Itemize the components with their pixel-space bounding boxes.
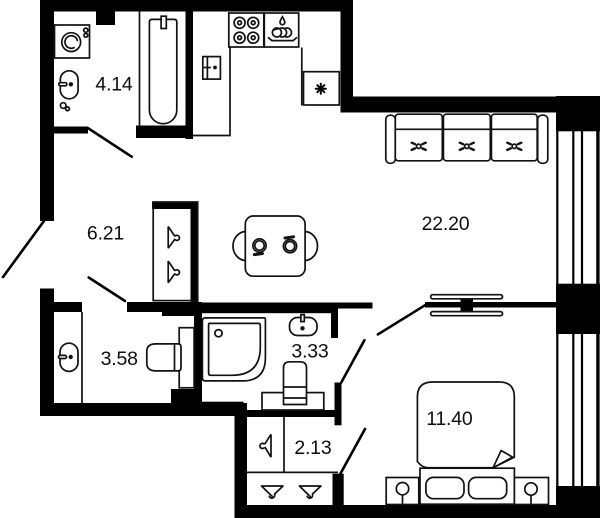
svg-text:3.58: 3.58: [101, 348, 138, 370]
svg-text:4.14: 4.14: [95, 74, 133, 96]
svg-text:6.21: 6.21: [87, 223, 124, 245]
svg-text:22.20: 22.20: [422, 213, 470, 235]
svg-text:2.13: 2.13: [294, 437, 331, 459]
svg-text:3.33: 3.33: [291, 340, 328, 362]
svg-text:11.40: 11.40: [426, 408, 473, 430]
